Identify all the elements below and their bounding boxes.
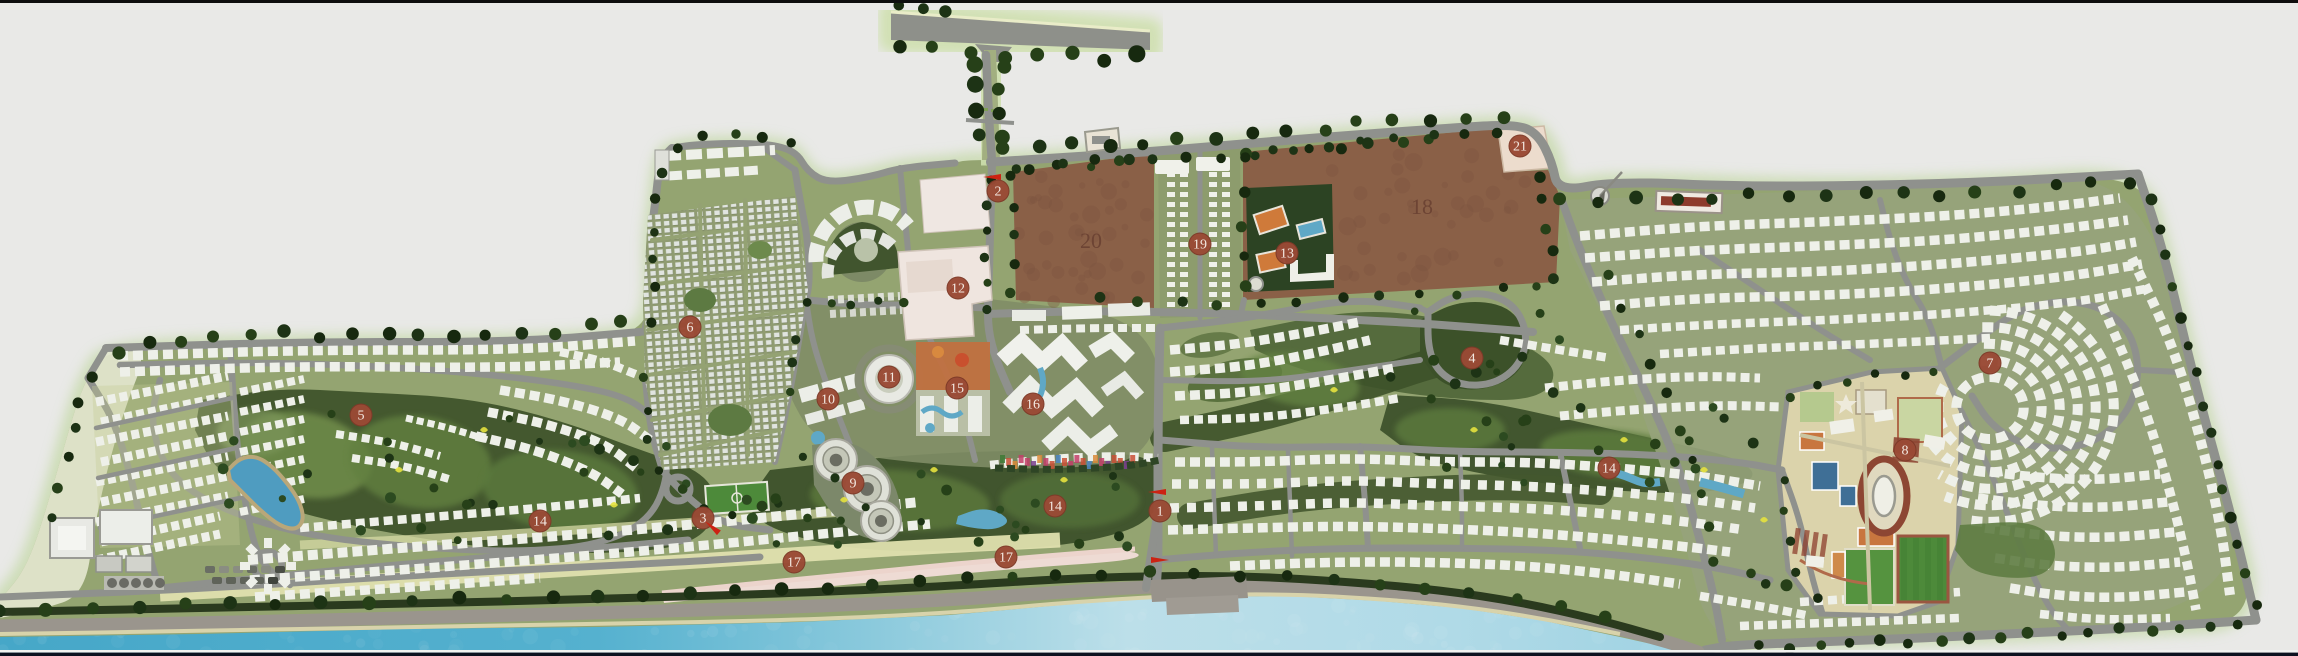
svg-text:5: 5	[358, 409, 365, 424]
svg-text:1: 1	[1157, 505, 1164, 520]
svg-text:16: 16	[1026, 398, 1040, 413]
svg-text:17: 17	[999, 551, 1013, 566]
svg-text:10: 10	[821, 393, 835, 408]
svg-text:4: 4	[1469, 352, 1476, 367]
svg-text:14: 14	[1602, 462, 1616, 477]
svg-text:17: 17	[787, 556, 801, 571]
svg-text:21: 21	[1513, 140, 1527, 155]
svg-text:13: 13	[1280, 247, 1294, 262]
svg-text:9: 9	[850, 477, 857, 492]
svg-text:14: 14	[533, 515, 547, 530]
svg-text:2: 2	[995, 185, 1002, 200]
svg-text:7: 7	[1987, 357, 1994, 372]
svg-text:11: 11	[882, 371, 895, 386]
svg-text:3: 3	[700, 512, 707, 527]
svg-text:14: 14	[1048, 500, 1062, 515]
svg-text:6: 6	[687, 321, 694, 336]
svg-text:19: 19	[1193, 238, 1207, 253]
svg-text:18: 18	[1411, 194, 1433, 219]
svg-text:8: 8	[1902, 444, 1909, 459]
svg-text:20: 20	[1080, 228, 1102, 253]
svg-text:12: 12	[951, 282, 965, 297]
svg-text:15: 15	[950, 382, 964, 397]
